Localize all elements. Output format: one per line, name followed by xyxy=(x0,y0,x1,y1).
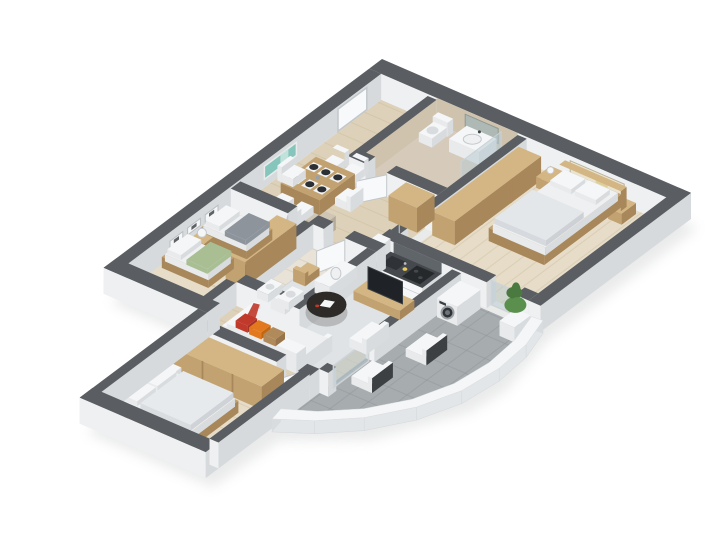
floor-plan-svg xyxy=(0,0,720,540)
floor-plan-canvas xyxy=(0,0,720,540)
apartment-building xyxy=(80,59,691,478)
coffee-table xyxy=(306,292,348,327)
